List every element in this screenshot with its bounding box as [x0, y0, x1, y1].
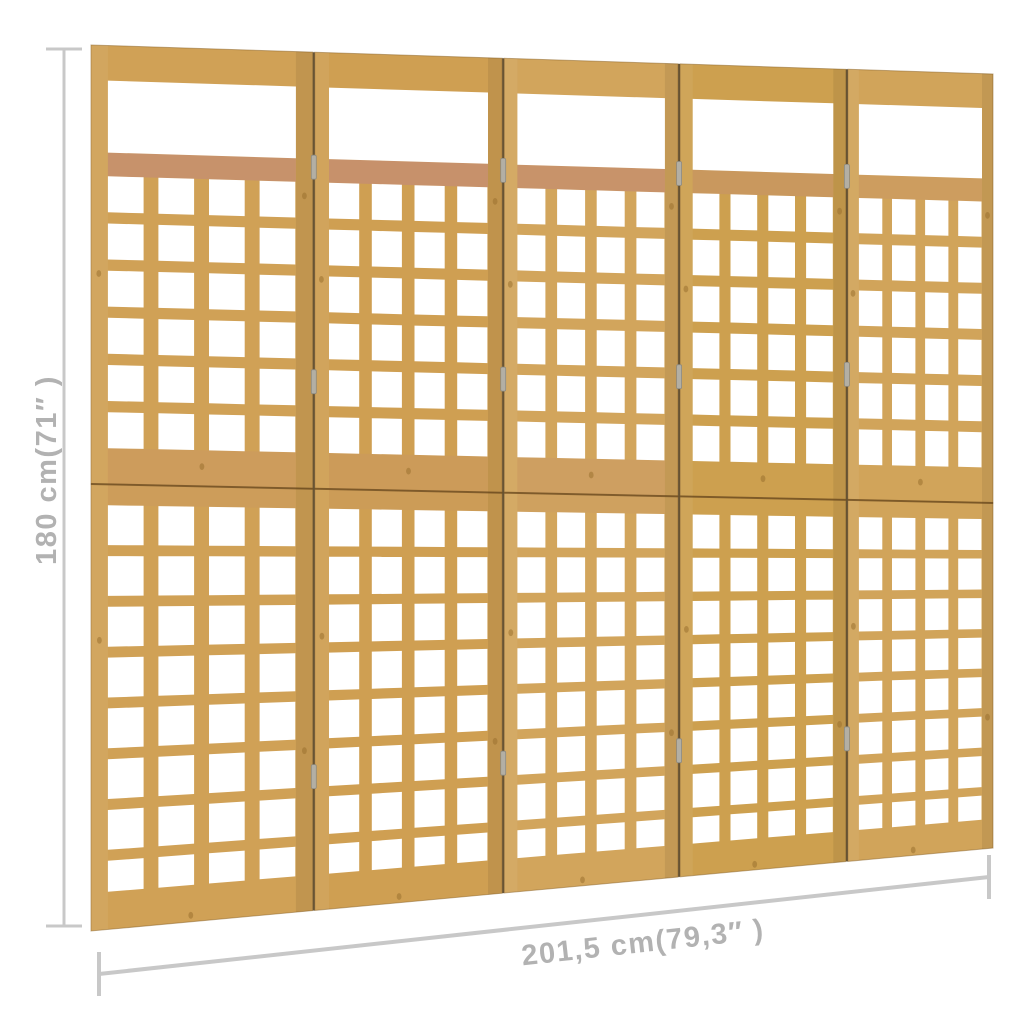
hinge [677, 162, 682, 186]
hinge [844, 727, 849, 751]
hinge [677, 365, 682, 389]
trellis-panel-5 [848, 69, 993, 861]
wood-knot [96, 270, 101, 277]
hinge [844, 362, 849, 386]
hinge [501, 158, 506, 182]
hinge [677, 739, 682, 763]
wood-knot [918, 479, 923, 486]
wood-knot [589, 472, 594, 479]
wood-knot [319, 276, 324, 283]
hinge [311, 765, 316, 789]
wood-knot [302, 193, 307, 200]
wood-knot [985, 212, 990, 219]
trellis-panel-2 [315, 52, 502, 910]
trellis [91, 45, 993, 931]
product-diagram: 180 cm(71″ ) 201,5 cm(79,3″ ) [0, 0, 1024, 1024]
wood-knot [837, 208, 842, 215]
wood-knot [985, 714, 990, 721]
wood-knot [761, 475, 766, 482]
hinge [311, 370, 316, 394]
trellis-panel-1 [91, 45, 313, 931]
wood-knot [493, 738, 498, 745]
wood-knot [97, 637, 102, 644]
wood-knot [851, 623, 856, 630]
wood-knot [200, 463, 205, 470]
height-dimension: 180 cm(71″ ) [31, 49, 82, 926]
wood-knot [508, 281, 513, 288]
wood-knot [320, 633, 325, 640]
hinge [311, 155, 316, 179]
wood-knot [580, 877, 585, 884]
wood-knot [493, 198, 498, 205]
wood-knot [837, 721, 842, 728]
trellis-panel-4 [680, 64, 846, 877]
wood-knot [911, 847, 916, 854]
wood-knot [752, 861, 757, 868]
hinge [501, 751, 506, 775]
hinge [844, 164, 849, 188]
trellis-panel-3 [504, 58, 678, 893]
wood-knot [508, 629, 513, 636]
wood-knot [851, 290, 856, 297]
wood-knot [669, 203, 674, 210]
wood-knot [669, 729, 674, 736]
hinge [501, 367, 506, 391]
wood-knot [302, 747, 307, 754]
wood-knot [397, 893, 402, 900]
wood-knot [684, 286, 689, 293]
height-dimension-label: 180 cm(71″ ) [31, 375, 63, 565]
wood-knot [406, 468, 411, 475]
wood-knot [684, 626, 689, 633]
wood-knot [188, 912, 193, 919]
trellis-illustration: 180 cm(71″ ) 201,5 cm(79,3″ ) [0, 0, 1024, 1024]
